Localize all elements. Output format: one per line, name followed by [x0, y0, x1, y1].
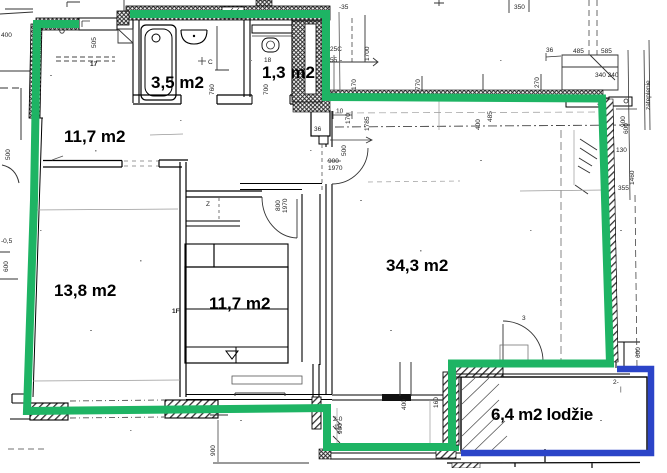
- svg-text:600: 600: [3, 261, 10, 272]
- svg-text:130: 130: [616, 147, 627, 154]
- svg-text:1460: 1460: [629, 170, 636, 185]
- svg-text:|: |: [620, 386, 622, 393]
- svg-text:1700: 1700: [364, 46, 371, 61]
- svg-text:2-0: 2-0: [333, 416, 343, 423]
- svg-text:270: 270: [534, 77, 541, 88]
- svg-text:900: 900: [210, 445, 217, 456]
- svg-text:-0,5: -0,5: [1, 238, 13, 245]
- svg-text:Z: Z: [206, 201, 210, 208]
- svg-text:11,7 m2: 11,7 m2: [64, 127, 125, 146]
- svg-text:2-: 2-: [613, 379, 619, 386]
- svg-text:17: 17: [90, 61, 98, 68]
- svg-text:170: 170: [345, 113, 352, 124]
- svg-text:500: 500: [341, 145, 348, 156]
- svg-text:6,4 m2 lodžie: 6,4 m2 lodžie: [491, 405, 593, 424]
- svg-text:3: 3: [522, 315, 526, 322]
- svg-text:900: 900: [620, 116, 627, 127]
- svg-text:400: 400: [401, 399, 408, 410]
- svg-text:11,7 m2: 11,7 m2: [209, 294, 270, 313]
- svg-text:1785: 1785: [364, 116, 371, 131]
- svg-text:25C: 25C: [330, 46, 342, 53]
- svg-text:3,5 m2: 3,5 m2: [151, 73, 204, 92]
- svg-text:800: 800: [275, 200, 282, 211]
- svg-text:36: 36: [314, 126, 322, 133]
- svg-text:zateplenie: zateplenie: [645, 80, 652, 110]
- svg-text:160: 160: [433, 397, 440, 408]
- svg-text:355: 355: [618, 185, 629, 192]
- svg-text:1970: 1970: [282, 198, 289, 213]
- svg-text:1,3 m2: 1,3 m2: [262, 63, 315, 82]
- svg-text:350: 350: [514, 4, 525, 11]
- svg-text:170: 170: [351, 79, 358, 90]
- svg-text:585: 585: [601, 48, 612, 55]
- svg-text:770: 770: [415, 79, 422, 90]
- svg-text:500: 500: [5, 149, 12, 160]
- svg-text:15: 15: [334, 424, 342, 431]
- svg-text:10: 10: [336, 108, 344, 115]
- svg-text:-35: -35: [339, 4, 349, 11]
- svg-text:36: 36: [546, 47, 554, 54]
- svg-text:340 240: 340 240: [595, 72, 619, 79]
- svg-text:505: 505: [91, 37, 98, 48]
- svg-text:485: 485: [573, 48, 584, 55]
- svg-text:1F: 1F: [172, 308, 180, 315]
- svg-text:34,3 m2: 34,3 m2: [386, 256, 448, 275]
- svg-text:760: 760: [209, 84, 216, 95]
- svg-text:1970: 1970: [328, 165, 343, 172]
- svg-text:700: 700: [263, 84, 270, 95]
- svg-text:13,8 m2: 13,8 m2: [54, 281, 116, 300]
- svg-text:400: 400: [475, 119, 482, 130]
- svg-text:900: 900: [328, 158, 339, 165]
- svg-text:C: C: [208, 59, 213, 66]
- svg-text:400: 400: [1, 32, 12, 39]
- svg-text:600: 600: [635, 347, 642, 358]
